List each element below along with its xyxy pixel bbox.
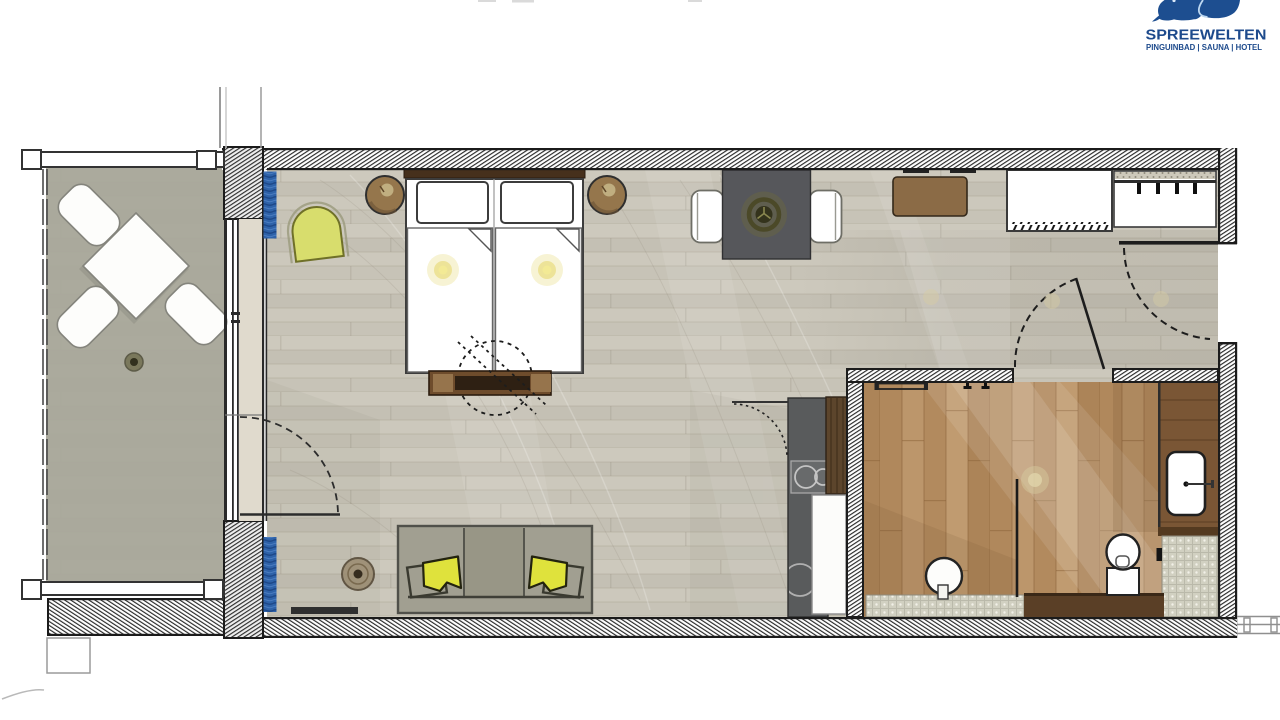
svg-text:SPREEWELTEN: SPREEWELTEN	[1146, 28, 1267, 44]
svg-text:PINGUINBAD | SAUNA | HOTEL: PINGUINBAD | SAUNA | HOTEL	[1146, 43, 1262, 52]
